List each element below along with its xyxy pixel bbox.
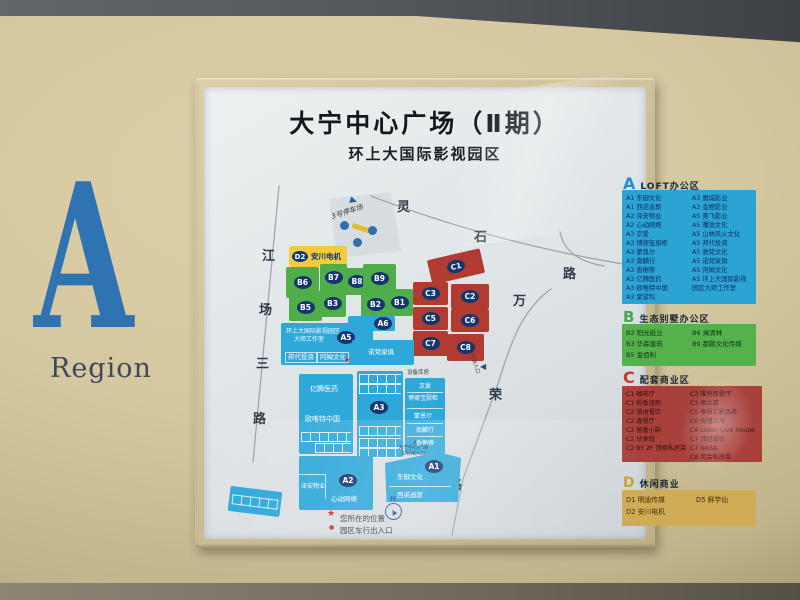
- legend-b-letter: B: [623, 310, 634, 325]
- a3-tenant: 南麟行: [416, 428, 434, 434]
- street-wanrong-char: 荣: [489, 389, 502, 402]
- legend-entry: A5 邦代投资: [692, 239, 746, 248]
- block-c6: C6: [451, 309, 489, 332]
- legend-d-box: D1 明迪传媒D2 安川电机 D5 鲜芋仙: [622, 490, 756, 526]
- legend-entry: C6 Listen Live House: [690, 426, 755, 435]
- a3-tenant: 蒙恩尔: [414, 414, 432, 420]
- block-a2-label: A2: [339, 474, 357, 487]
- legend-entry: B2 阳光纸业: [626, 328, 688, 339]
- legend-entry: A2 泽安物业: [626, 212, 688, 221]
- block-c5-label: C5: [422, 312, 440, 325]
- street-jiangchang-char: 江: [262, 250, 275, 263]
- legend-entry: A2 心动网络: [626, 221, 688, 230]
- legend-entry: C6 悦瑾江河: [690, 417, 755, 426]
- divider: [407, 392, 443, 393]
- legend-entry: A3 香榭蒂: [626, 266, 688, 275]
- a3-tenant: 亿腾医药: [310, 386, 338, 393]
- legend-b-box: B2 阳光纸业B3 华森建筑B5 金佰利 B6 澜清林B9 都鹏文化传媒: [622, 324, 756, 366]
- unit-cells-row: [359, 374, 401, 384]
- unit-cells-row: [232, 494, 279, 510]
- block-b3-label: B3: [324, 297, 342, 310]
- key-entrance-text: 园区车行出入口: [340, 525, 393, 536]
- block-a2: 泽安物业 A2 心动网络: [299, 456, 373, 510]
- a5-tenant: 大师工作室: [294, 337, 324, 343]
- legend-c-title: 配套商业区: [640, 373, 690, 386]
- panel-subtitle: 环上大国际影视园区: [195, 143, 655, 164]
- street-wanrong-char: 万: [513, 295, 526, 308]
- legend-entry: A1 东御文化: [626, 194, 688, 203]
- divider: [389, 486, 451, 487]
- a3-tenant: 京爱: [419, 384, 431, 390]
- legend-entry: B9 都鹏文化传媒: [692, 339, 742, 350]
- a5-tenant: 诺梵家俱: [368, 349, 394, 356]
- block-a6-label: A6: [374, 317, 392, 330]
- legend-entry: A3 南麟行: [626, 257, 688, 266]
- region-label: Region: [50, 353, 152, 384]
- a3-top-label: 设备库房: [407, 371, 429, 377]
- block-c8: C8: [447, 334, 484, 361]
- legend-entry: A3 亿腾医药: [626, 275, 688, 284]
- legend-entry: C2 BY 2F 顶级私房菜: [626, 444, 686, 453]
- a2-tenant: 泽安物业: [301, 484, 325, 490]
- block-b6-label: B6: [294, 276, 312, 289]
- legend-entry: B5 金佰利: [626, 350, 688, 361]
- legend-entry: D5 鲜芋仙: [696, 494, 728, 506]
- a1-tenant: 西诺迪斯: [397, 492, 423, 499]
- legend-entry: A5 诺梵家俱: [692, 257, 746, 266]
- legend-entry: A5 奥飞影业: [692, 212, 746, 221]
- location-star-marker: ★: [344, 356, 350, 364]
- street-lingshi-char: 灵: [397, 201, 410, 214]
- legend-entry: C1 焖香迷踪: [626, 399, 686, 408]
- legend-entry: A3 紫望坞: [626, 293, 688, 302]
- divider: [407, 408, 443, 409]
- legend-d-header: D 休闲商业: [623, 476, 680, 490]
- block-c1-label: C1: [446, 258, 466, 275]
- legend-entry: A3 蒙恩尔: [626, 248, 688, 257]
- a5-tenant: 邦代投资: [285, 352, 317, 363]
- key-entrance-icon: ●: [329, 525, 334, 531]
- legend-entry: A3 京爱: [626, 230, 688, 239]
- legend-entry: A5 雅梵文化: [692, 248, 746, 257]
- legend-entry: D1 明迪传媒: [626, 494, 692, 506]
- legend-c-header: C 配套商业区: [623, 370, 690, 386]
- region-letter: A: [34, 178, 133, 338]
- a1-tenant: 东御文化: [397, 474, 423, 481]
- legend-entry: A3 欧唯特中国: [626, 284, 688, 293]
- legend-entry: C8 玥会私房菜: [690, 453, 755, 462]
- street-jiangchang-char: 三: [256, 358, 269, 371]
- block-c2-label: C2: [461, 290, 479, 303]
- panel-title: 大宁中心广场（Ⅱ期）: [195, 104, 655, 140]
- block-a1-label: A1: [425, 460, 443, 473]
- block-c7-label: C7: [422, 337, 440, 350]
- block-b9-label: B9: [371, 272, 389, 285]
- block-d2-label: D2: [292, 251, 308, 262]
- legend-entry: B3 华森建筑: [626, 339, 688, 350]
- block-b7-label: B7: [325, 271, 343, 284]
- legend-d-letter: D: [623, 476, 635, 490]
- block-c6-label: C6: [461, 314, 479, 327]
- block-b5: B5: [289, 294, 322, 321]
- street-jiangchang-char: 场: [259, 304, 272, 317]
- block-b1: B1: [386, 289, 413, 316]
- block-b3: B3: [319, 290, 346, 317]
- legend-b-header: B 生态别墅办公区: [623, 310, 709, 325]
- entrance-caption: 车行出入口: [401, 452, 426, 457]
- unit-cells-row: [315, 443, 351, 453]
- legend-entry: A3 金橙影业: [692, 203, 746, 212]
- legend-entry: C1 咖啡厅: [626, 390, 686, 399]
- legend-entry: C2 漫途餐饮: [626, 408, 686, 417]
- legend-c-letter: C: [623, 370, 635, 386]
- street-lingshi-char: 石: [474, 231, 487, 244]
- legend-a-box: A1 东御文化A1 西诺迪斯A2 泽安物业A2 心动网络A3 京爱A3 博德宝厨…: [622, 190, 756, 304]
- legend-entry: C7 NASA: [690, 444, 755, 453]
- unit-cells-row: [359, 438, 401, 448]
- block-c5: C5: [413, 307, 448, 330]
- legend-entry: C3 格兰慕: [690, 399, 755, 408]
- unit-cells-row: [301, 432, 351, 442]
- block-a3-right: 京爱 博德宝厨柜 蒙恩尔 南麟行 香榭蒂: [405, 378, 445, 454]
- legend-entry: A3 魔城影业: [692, 194, 746, 203]
- block-b1-label: B1: [391, 296, 409, 309]
- unit-cells-row: [359, 426, 401, 436]
- side-entrance-arrow-icon: ◀: [480, 362, 486, 371]
- divider: [407, 423, 443, 424]
- a3-tenant: 博德宝厨柜: [408, 396, 438, 402]
- block-c7: C7: [413, 331, 448, 356]
- block-a5-wing: 诺梵家俱: [352, 340, 414, 365]
- compass-n-label: N: [390, 495, 396, 503]
- legend-entry: A5 山林风火文化: [692, 230, 746, 239]
- a3-tenant: 欧唯特中国: [305, 416, 340, 423]
- legend-entry: A5 环上大国际影视: [692, 275, 746, 284]
- legend-entry: C2 鑫餐厅: [626, 417, 686, 426]
- key-star-icon: ★: [327, 510, 335, 519]
- legend-entry: B6 澜清林: [692, 328, 742, 339]
- divider: [407, 436, 443, 437]
- legend-entry: C2 伙食班: [626, 435, 686, 444]
- legend-entry: C3 唯利西餐厅: [690, 390, 755, 399]
- block-b2-label: B2: [367, 298, 385, 311]
- parking-icon: [368, 226, 377, 235]
- ground-shadow-strip: [0, 583, 800, 600]
- legend-entry: A5 曙浪文化: [692, 221, 746, 230]
- block-c2: C2: [451, 284, 489, 309]
- legend-entry: D2 安川电机: [626, 506, 692, 518]
- compass-icon: ▲: [385, 503, 402, 520]
- block-c3: C3: [413, 282, 448, 305]
- block-b9: B9: [363, 264, 396, 292]
- street-lingshi-char: 路: [563, 268, 576, 281]
- a5-tenant: 环上大国际影视园区: [286, 329, 340, 335]
- legend-entry: C2 留香小厨: [626, 426, 686, 435]
- block-d2-name: 安川电机: [311, 251, 341, 262]
- parking-icon: [353, 238, 362, 247]
- key-location-text: 您所在的位置: [340, 513, 385, 524]
- legend-entry: 园区大师工作室: [692, 284, 746, 293]
- block-b5-label: B5: [297, 301, 315, 314]
- legend-entry: C7 顶冠餐饮: [690, 435, 755, 444]
- photo-of-map-signboard: A Region 大宁中心广场（Ⅱ期） 环上大国际影视园区 江 场 三 路 灵 …: [0, 0, 800, 600]
- parking-icon: [340, 221, 349, 230]
- unit-cells-row: [359, 384, 401, 394]
- block-a3-left: 亿腾医药 欧唯特中国: [299, 374, 353, 454]
- block-c3-label: C3: [422, 287, 440, 300]
- legend-entry: A5 阿姆文化: [692, 266, 746, 275]
- legend-d-title: 休闲商业: [640, 477, 680, 490]
- legend-entry: C5 泰熹汇影品荟: [690, 408, 755, 417]
- legend-c-box: C1 咖啡厅C1 焖香迷踪C2 漫途餐饮C2 鑫餐厅C2 留香小厨C2 伙食班C…: [622, 386, 762, 462]
- block-a3-center: A3: [357, 371, 403, 457]
- a2-tenant: 心动网络: [331, 496, 357, 503]
- block-a3-label: A3: [370, 401, 388, 414]
- legend-entry: A3 博德宝厨柜: [626, 239, 688, 248]
- street-jiangchang-char: 路: [253, 413, 266, 426]
- legend-entry: A1 西诺迪斯: [626, 203, 688, 212]
